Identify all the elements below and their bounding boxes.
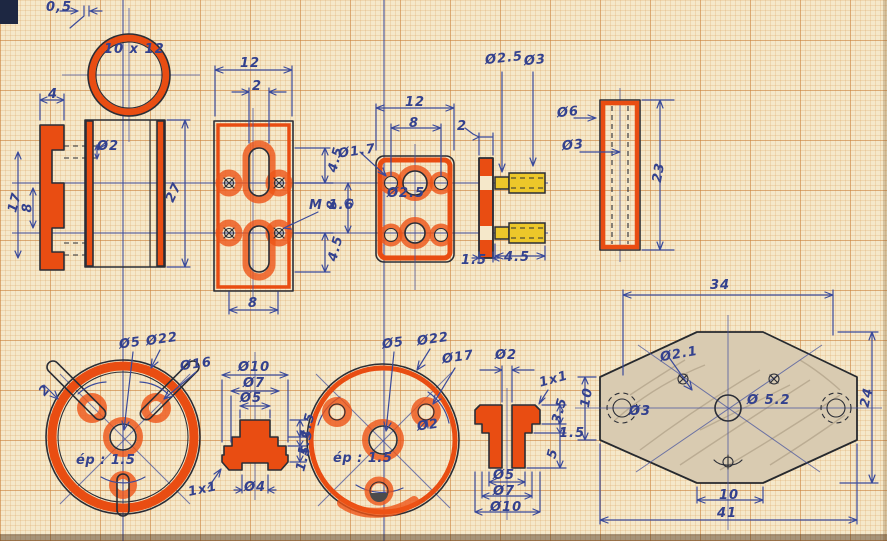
technical-drawing bbox=[0, 0, 887, 541]
part-stepped-hub bbox=[208, 352, 306, 500]
part-disc-three-holes bbox=[307, 349, 459, 516]
part-ring-view bbox=[60, 6, 200, 142]
graph-paper-sheet: 0,510 x 124122Ø217827128Ø1.7Ø2.584.54.5M… bbox=[0, 0, 887, 541]
part-plate-side-view bbox=[85, 120, 190, 267]
scan-artifact bbox=[0, 0, 12, 22]
part-six-hole-plate bbox=[345, 104, 454, 290]
sheet-edge-shadow bbox=[883, 0, 887, 541]
thread-note-symbol bbox=[345, 199, 353, 207]
part-tube bbox=[574, 88, 674, 262]
part-hexagonal-plate bbox=[575, 290, 882, 530]
part-bushing-section bbox=[475, 366, 566, 520]
part-slotted-plate bbox=[214, 66, 353, 314]
pin-bottom bbox=[495, 223, 545, 243]
pin-top bbox=[495, 173, 545, 193]
sheet-edge-shadow bbox=[0, 534, 887, 541]
tapped-holes bbox=[224, 178, 284, 238]
